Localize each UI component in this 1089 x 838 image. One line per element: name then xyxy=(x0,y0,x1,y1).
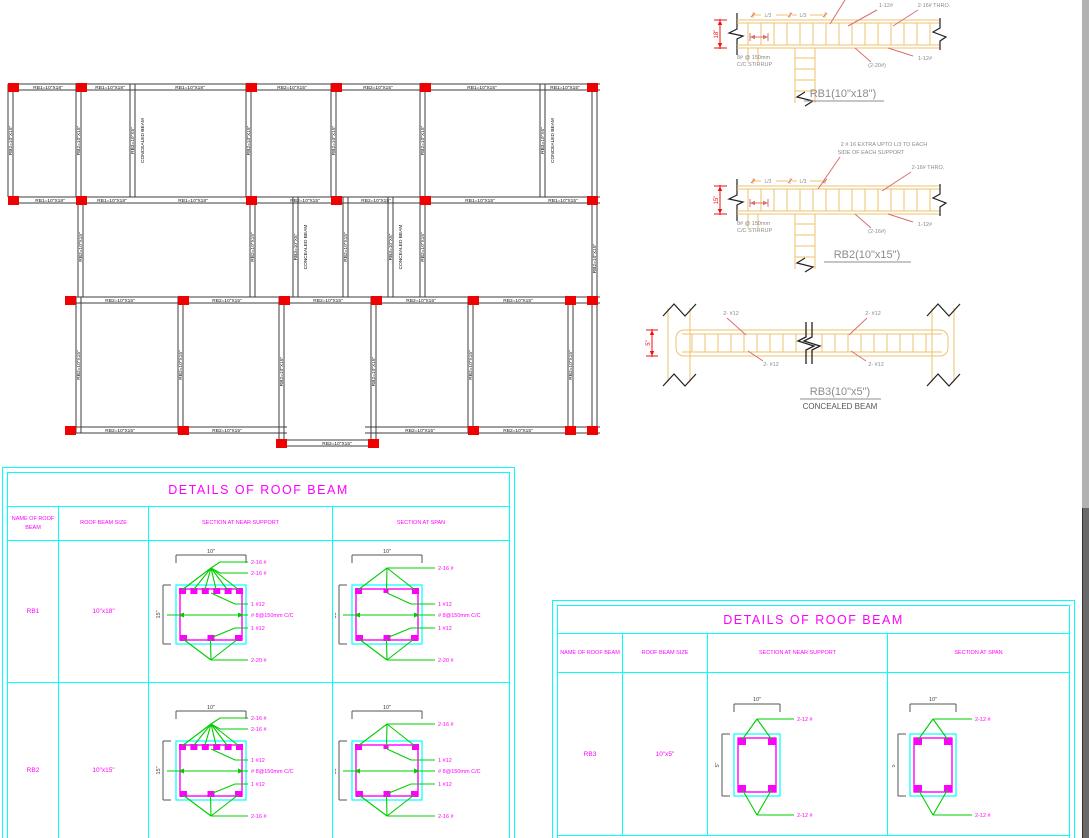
beam-label: RB2=10"X15" xyxy=(406,298,436,304)
line xyxy=(933,789,948,815)
beam-label: RB1=10"X15" xyxy=(467,85,497,91)
beam-label: RB2=10"X15" xyxy=(420,126,426,156)
line xyxy=(757,789,772,815)
rebar-note: 2- #12 xyxy=(763,362,779,368)
line xyxy=(742,789,757,815)
line xyxy=(893,10,918,26)
beam-label: RB1=10"X18" xyxy=(97,198,127,204)
line xyxy=(387,724,388,746)
beam-label: RB2=10"X15" xyxy=(363,85,393,91)
rb1-span-section: 10"15"2-16 #1 #12# 8@150mm C/C1 #122-20 … xyxy=(335,542,507,682)
column-marker xyxy=(65,426,76,435)
line xyxy=(387,568,388,590)
rebar-note: 1-12# xyxy=(879,3,894,9)
line xyxy=(918,719,933,740)
column-marker xyxy=(587,83,598,92)
cell-section-near: 10"15"2-16 #2-16 #1 #12# 8@150mm C/C1 #1… xyxy=(149,683,333,838)
beam-label: CONCEALED BEAM xyxy=(303,225,309,270)
dim-width: 10" xyxy=(752,697,760,703)
line xyxy=(210,795,211,816)
rb3-span-section: 10"5"2-12 #2-12 # xyxy=(892,674,1066,834)
line xyxy=(387,795,388,816)
arrowhead xyxy=(650,330,654,335)
header-size: ROOF BEAM SIZE xyxy=(623,634,708,672)
beam-label: RB2=10"X15" xyxy=(246,126,252,156)
line xyxy=(387,568,415,590)
detail-title: RB3(10"x5") xyxy=(810,386,870,398)
floor-plan: RB2=10"X15"RB2=10"X15"RB3=10"X5"CONCEALE… xyxy=(8,83,600,448)
arrowhead xyxy=(763,35,768,39)
arrowhead xyxy=(650,351,654,356)
beam-label: RB2=10"X15" xyxy=(279,357,285,387)
rebar-label: 2-16 # xyxy=(251,814,268,820)
table-header-row: NAME OF ROOF BEAM ROOF BEAM SIZE SECTION… xyxy=(558,634,1069,673)
rebar xyxy=(180,791,187,797)
column-marker xyxy=(420,196,431,205)
beam-label: CONCEALED BEAM xyxy=(140,118,146,163)
rebar xyxy=(179,744,186,750)
stirrup-label: # 8@150mm C/C xyxy=(251,769,294,775)
rb3-elevation-detail: 5"2- #122- #122- #122- #12RB3(10"x5")CON… xyxy=(646,304,960,411)
cell-name: RB1 xyxy=(8,541,59,682)
column-marker xyxy=(468,426,479,435)
arrowhead xyxy=(354,612,360,617)
dim-width: 10" xyxy=(383,705,391,711)
cad-drawing-canvas: RB2=10"X15"RB2=10"X15"RB3=10"X5"CONCEALE… xyxy=(0,0,1089,838)
beam-label: CONCEALED BEAM xyxy=(398,225,404,270)
rebar-label: 2-20 # xyxy=(251,658,268,664)
column-marker xyxy=(279,296,290,305)
rebar-note: 2-16# THRO. xyxy=(918,3,951,9)
line xyxy=(848,10,877,26)
dim-height: 5" xyxy=(892,762,897,767)
table-row-rb3: RB3 10"x5" 10"5"2-12 #2-12 # 10"5"2-12 #… xyxy=(558,673,1069,836)
beam-label: RB2=10"X15" xyxy=(313,298,343,304)
line xyxy=(358,724,387,746)
rebar-label: 2-20 # xyxy=(438,658,455,664)
beam-label: RB2=10"X15" xyxy=(322,441,352,447)
beam-label: RB2=10"X15" xyxy=(371,357,377,387)
line xyxy=(757,719,772,740)
column-marker xyxy=(587,426,598,435)
beam-label: RB2=10"X15" xyxy=(331,126,337,156)
stirrup-note: C/C STIRRUP xyxy=(737,228,772,234)
dim-text: 15" xyxy=(714,196,720,205)
beam-label: RB2=10"X15" xyxy=(212,428,242,434)
rebar-note: 2 # 16 EXTRA UPTO L/3 TO EACH xyxy=(841,142,928,148)
dim-height: 15" xyxy=(156,610,162,618)
column-marker xyxy=(587,296,598,305)
rebar xyxy=(355,588,362,594)
beam-cross-section: 10"15"2-16 #2-16 #1 #12# 8@150mm C/C1 #1… xyxy=(156,705,294,820)
beam-label: RB1=10"X18" xyxy=(95,85,125,91)
cell-section-span: 10"15"2-16 #1 #12# 8@150mm C/C1 #122-16 … xyxy=(333,683,509,838)
detail-title: RB1(10"x18") xyxy=(810,88,877,100)
stirrup-label: # 8@150mm C/C xyxy=(438,613,481,619)
rebar-label: 2-16 # xyxy=(251,571,268,577)
rebar-note: 2- #12 xyxy=(865,311,881,317)
dim-text: 18" xyxy=(714,30,720,39)
rebar xyxy=(914,738,922,745)
line xyxy=(387,795,414,816)
arrowhead xyxy=(718,186,722,191)
column-marker xyxy=(178,426,189,435)
stirrup-label: # 8@150mm C/C xyxy=(251,613,294,619)
line xyxy=(211,795,238,816)
rebar-note: 1-12# xyxy=(918,56,933,62)
detail-title: RB2(10"x15") xyxy=(834,249,901,261)
line xyxy=(359,639,387,660)
beam-label: RB1=10"X18" xyxy=(33,85,63,91)
column-marker xyxy=(276,439,287,448)
cell-size: 10"x18" xyxy=(59,541,149,682)
rebar-label: 2-12 # xyxy=(975,813,992,819)
rebar xyxy=(224,744,231,750)
table-inner-border: DETAILS OF ROOF BEAM NAME OF ROOF BEAM R… xyxy=(7,472,510,838)
scrollbar-track[interactable] xyxy=(1082,508,1089,838)
column-marker xyxy=(8,196,19,205)
beam-label: RB1=10"X18" xyxy=(178,198,208,204)
line xyxy=(882,172,911,191)
polyline xyxy=(729,179,743,221)
rebar-label: 1 #12 xyxy=(251,626,265,632)
rebar-note: (2-16#) xyxy=(868,229,886,235)
polyline xyxy=(211,718,248,724)
dim-width: 10" xyxy=(383,549,391,555)
beam-label: RB3=10"X5" xyxy=(540,127,546,154)
cell-section-span: 10"5"2-12 #2-12 # xyxy=(888,673,1069,835)
table-title: DETAILS OF ROOF BEAM xyxy=(723,613,903,627)
rebar-note: 1-12# xyxy=(918,222,933,228)
rebar xyxy=(224,588,231,594)
cell-size: 10"x5" xyxy=(623,673,708,835)
beam-cross-section: 10"15"2-16 #1 #12# 8@150mm C/C1 #122-20 … xyxy=(335,549,481,664)
rebar xyxy=(213,744,220,750)
beam-label: RB2=10"X15" xyxy=(361,198,391,204)
rebar-note: SIDE OF EACH SUPPORT xyxy=(838,150,905,156)
column-marker xyxy=(331,196,342,205)
rebar-label: 2-16 # xyxy=(251,727,268,733)
table-row-rb1: RB1 10"x18" 10"15"2-16 #2-16 #1 #12# 8@1… xyxy=(8,541,509,683)
cell-size: 10"x15" xyxy=(59,683,149,838)
table-title-row: DETAILS OF ROOF BEAM xyxy=(8,473,509,507)
header-name: NAME OF ROOF BEAM xyxy=(8,507,59,540)
rb2-elevation-detail: L/3L/315"8# @ 150mmC/C STIRRUP(2-16#)1-1… xyxy=(714,142,946,272)
beam-label: RB2=10"X15" xyxy=(8,126,14,156)
column-marker xyxy=(565,296,576,305)
beam-label: RB2=10"X15" xyxy=(178,350,184,380)
rebar-label: 2-12 # xyxy=(975,717,992,723)
arrowhead xyxy=(763,201,768,205)
rebar-label: 1 #12 xyxy=(251,758,265,764)
line xyxy=(210,639,211,660)
header-span: SECTION AT SPAN xyxy=(333,507,509,540)
column-marker xyxy=(65,296,76,305)
line xyxy=(387,639,388,660)
line xyxy=(742,719,757,740)
rb1-near-section: 10"15"2-16 #2-16 #1 #12# 8@150mm C/C1 #1… xyxy=(151,542,331,682)
arrowhead xyxy=(718,209,722,214)
rebar xyxy=(738,785,746,792)
stirrup-outline xyxy=(914,738,952,792)
rebar-label: 2-16 # xyxy=(251,560,268,566)
header-span: SECTION AT SPAN xyxy=(888,634,1069,672)
arrowhead xyxy=(414,769,420,774)
dim-text: 5" xyxy=(646,340,652,345)
column-marker xyxy=(76,196,87,205)
rebar-label: 1 #12 xyxy=(251,782,265,788)
line xyxy=(818,157,840,189)
cell-section-near: 10"5"2-12 #2-12 # xyxy=(708,673,888,835)
beam-label: RB3=10"X5" xyxy=(293,233,299,260)
beam-label: RB2=10"X15" xyxy=(105,298,135,304)
beam-label: RB2=10"X15" xyxy=(78,232,84,262)
rebar-label: 2-16 # xyxy=(438,722,455,728)
line xyxy=(387,724,415,746)
beam-cross-section: 10"15"2-16 #1 #12# 8@150mm C/C1 #122-16 … xyxy=(335,705,481,820)
rebar xyxy=(213,588,220,594)
rebar-label: 2-12 # xyxy=(797,717,814,723)
line xyxy=(359,795,387,816)
line xyxy=(183,639,211,660)
line xyxy=(358,568,387,590)
detail-subtitle: CONCEALED BEAM xyxy=(803,402,878,411)
beam-label: RB2=10"X15" xyxy=(76,350,82,380)
line xyxy=(888,214,913,222)
column-marker xyxy=(468,296,479,305)
header-name: NAME OF ROOF BEAM xyxy=(558,634,623,672)
column-marker xyxy=(368,439,379,448)
column-marker xyxy=(246,83,257,92)
rebar xyxy=(179,588,186,594)
beam-label: RB2=10"X15" xyxy=(343,232,349,262)
dim-text: L/3 xyxy=(800,179,807,185)
arrowhead xyxy=(238,612,244,617)
column-marker xyxy=(420,83,431,92)
arrowhead xyxy=(178,769,184,774)
rebar xyxy=(355,744,362,750)
rebar-label: 1 #12 xyxy=(251,602,265,608)
dim-text: L/3 xyxy=(765,179,772,185)
header-near-support: SECTION AT NEAR SUPPORT xyxy=(708,634,888,672)
beam-label: RB3=10"X5" xyxy=(388,233,394,260)
roof-beam-table-right: DETAILS OF ROOF BEAM NAME OF ROOF BEAM R… xyxy=(552,600,1075,838)
arrowhead xyxy=(750,35,755,39)
rebar xyxy=(768,785,776,792)
dim-width: 10" xyxy=(206,705,214,711)
line xyxy=(387,639,414,660)
cell-section-near: 10"15"2-16 #2-16 #1 #12# 8@150mm C/C1 #1… xyxy=(149,541,333,682)
beam-label: RB1=10"X18" xyxy=(35,198,65,204)
dim-height: 15" xyxy=(335,766,338,774)
rebar-label: 2-16 # xyxy=(438,814,455,820)
rebar-label: 1 #12 xyxy=(438,782,452,788)
column-marker xyxy=(565,426,576,435)
rebar xyxy=(944,785,952,792)
roof-beam-table-left: DETAILS OF ROOF BEAM NAME OF ROOF BEAM R… xyxy=(2,467,515,838)
polyline xyxy=(213,784,248,793)
beam-label: RB2=10"X15" xyxy=(568,350,574,380)
rb2-span-section: 10"15"2-16 #1 #12# 8@150mm C/C1 #122-16 … xyxy=(335,684,507,838)
table-title-cell: DETAILS OF ROOF BEAM xyxy=(558,606,1069,633)
arrowhead xyxy=(718,20,722,25)
arrowhead xyxy=(718,43,722,48)
beam-cross-section: 10"15"2-16 #2-16 #1 #12# 8@150mm C/C1 #1… xyxy=(156,549,294,664)
stirrup-note: C/C STIRRUP xyxy=(737,62,772,68)
polyline xyxy=(387,593,435,604)
rebar xyxy=(768,738,776,745)
cell-name: RB2 xyxy=(8,683,59,838)
rebar-note: 2-16# THRO. xyxy=(912,165,945,171)
rebar-label: 2-16 # xyxy=(438,566,455,572)
beam-cross-section: 10"5"2-12 #2-12 # xyxy=(892,697,992,819)
dim-width: 10" xyxy=(928,697,936,703)
polyline xyxy=(729,13,743,55)
rebar-note: (2-20#) xyxy=(868,63,886,69)
stirrup-outline xyxy=(738,738,776,792)
stirrup-label: # 8@150mm C/C xyxy=(438,769,481,775)
beam-label: RB1=10"X15" xyxy=(548,198,578,204)
header-near-support: SECTION AT NEAR SUPPORT xyxy=(149,507,333,540)
table-row-rb2: RB2 10"x15" 10"15"2-16 #2-16 #1 #12# 8@1… xyxy=(8,683,509,838)
line xyxy=(918,789,933,815)
line xyxy=(849,318,867,335)
column-marker xyxy=(246,196,257,205)
dim-height: 15" xyxy=(156,766,162,774)
line xyxy=(855,214,871,228)
arrowhead xyxy=(238,769,244,774)
beam-label: RB2=10"X15" xyxy=(212,298,242,304)
dim-text: L/3 xyxy=(800,13,807,19)
column-marker xyxy=(8,83,19,92)
dim-height: 5" xyxy=(715,762,721,767)
rebar xyxy=(356,635,363,641)
rb3-near-section: 10"5"2-12 #2-12 # xyxy=(710,674,886,834)
rebar-note: 2- #12 xyxy=(868,362,884,368)
beam-label: RB2=10"X15" xyxy=(503,298,533,304)
beam-label: RB2=10"X15" xyxy=(290,198,320,204)
polyline xyxy=(387,749,435,760)
line xyxy=(855,48,871,62)
rebar-label: 1 #12 xyxy=(438,626,452,632)
arrowhead xyxy=(414,612,420,617)
dim-text: L/3 xyxy=(765,13,772,19)
rebar xyxy=(944,738,952,745)
table-inner-border: DETAILS OF ROOF BEAM NAME OF ROOF BEAM R… xyxy=(557,605,1070,838)
scrollbar-thumb[interactable] xyxy=(1082,0,1089,508)
table-title-cell: DETAILS OF ROOF BEAM xyxy=(8,473,509,506)
beam-label: RB1=10"X15" xyxy=(465,198,495,204)
beam-label: RB2=10"X15" xyxy=(277,85,307,91)
line xyxy=(727,318,746,335)
rebar xyxy=(180,635,187,641)
beam-label: RB2=10"X15" xyxy=(76,126,82,156)
dim-width: 10" xyxy=(206,549,214,555)
rebar-note: 2- #12 xyxy=(723,311,739,317)
beam-label: RB2=10"X15" xyxy=(468,350,474,380)
beam-label: RB2=10"X15" xyxy=(503,428,533,434)
table-title-row: DETAILS OF ROOF BEAM xyxy=(558,606,1069,634)
rebar-label: 1 #12 xyxy=(438,602,452,608)
beam-label: RB2=10"X15" xyxy=(592,244,598,274)
beam-label: RB2=10"X15" xyxy=(105,428,135,434)
column-marker xyxy=(371,296,382,305)
polyline xyxy=(797,258,813,272)
arrowhead xyxy=(178,612,184,617)
line xyxy=(888,48,913,56)
line xyxy=(211,639,238,660)
header-size: ROOF BEAM SIZE xyxy=(59,507,149,540)
rebar xyxy=(914,785,922,792)
beam-cross-section: 10"5"2-12 #2-12 # xyxy=(715,697,814,819)
beam-label: RB2=10"X15" xyxy=(250,232,256,262)
rebar-label: 2-16 # xyxy=(251,716,268,722)
beam-label: RB2=10"X15" xyxy=(420,232,426,262)
arrowhead xyxy=(354,769,360,774)
beam-label: RB1=10"X18" xyxy=(175,85,205,91)
dim-height: 15" xyxy=(335,610,338,618)
line xyxy=(933,719,948,740)
rb2-near-section: 10"15"2-16 #2-16 #1 #12# 8@150mm C/C1 #1… xyxy=(151,684,331,838)
polyline xyxy=(211,562,248,568)
cell-name: RB3 xyxy=(558,673,623,835)
table-title: DETAILS OF ROOF BEAM xyxy=(168,483,348,497)
beam-label: RB1=10"X15" xyxy=(550,85,580,91)
polyline xyxy=(213,628,248,637)
rebar-label: 1 #12 xyxy=(438,758,452,764)
stirrup-note: 8# @ 150mm xyxy=(737,55,771,61)
line xyxy=(183,795,211,816)
stirrup-note: 8# @ 150mm xyxy=(737,221,771,227)
beam-label: CONCEALED BEAM xyxy=(550,118,556,163)
table-header-row: NAME OF ROOF BEAM ROOF BEAM SIZE SECTION… xyxy=(8,507,509,541)
cell-section-span: 10"15"2-16 #1 #12# 8@150mm C/C1 #122-20 … xyxy=(333,541,509,682)
column-marker xyxy=(76,83,87,92)
column-marker xyxy=(331,83,342,92)
rebar-label: 2-12 # xyxy=(797,813,814,819)
rb1-elevation-detail: L/3L/318"8# @ 150mmC/C STIRRUP(2-20#)1-1… xyxy=(714,0,951,106)
beam-label: RB3=10"X5" xyxy=(130,127,136,154)
column-marker xyxy=(587,196,598,205)
column-marker xyxy=(178,296,189,305)
rebar xyxy=(738,738,746,745)
rebar xyxy=(356,791,363,797)
arrowhead xyxy=(750,201,755,205)
beam-label: RB2=10"X15" xyxy=(405,428,435,434)
